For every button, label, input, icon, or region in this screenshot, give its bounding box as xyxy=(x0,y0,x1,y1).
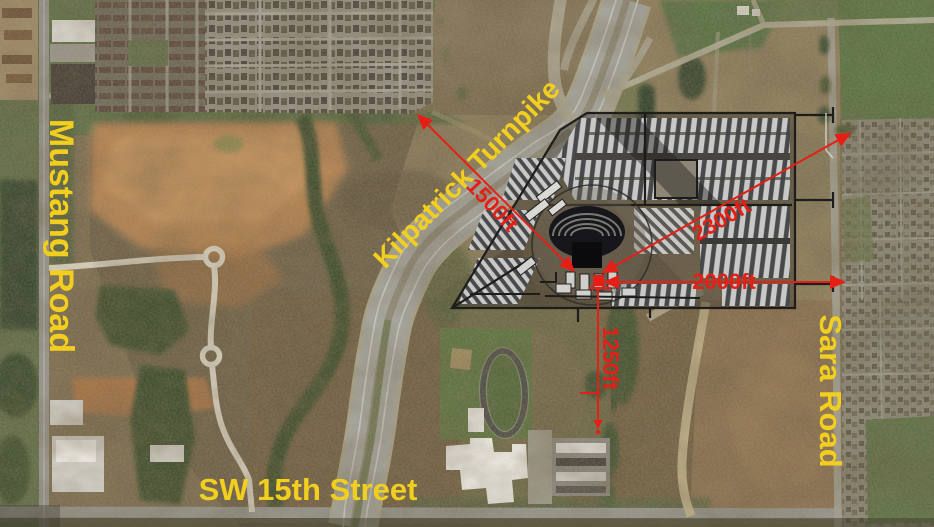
svg-text:Sara Road: Sara Road xyxy=(813,314,848,467)
svg-text:Mustang Road: Mustang Road xyxy=(42,119,80,353)
svg-text:2000ft: 2000ft xyxy=(692,269,756,294)
svg-text:SW 15th Street: SW 15th Street xyxy=(199,472,418,507)
svg-text:1250ft: 1250ft xyxy=(598,326,623,390)
